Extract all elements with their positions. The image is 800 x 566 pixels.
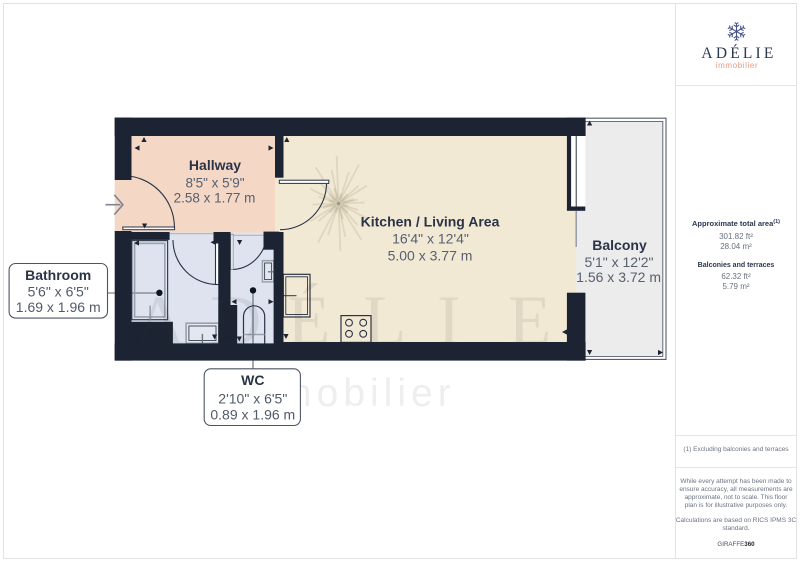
svg-text:I: I <box>437 282 461 360</box>
svg-text:8'5" x 5'9": 8'5" x 5'9" <box>185 175 244 190</box>
svg-text:2.58 x 1.77 m: 2.58 x 1.77 m <box>174 191 256 206</box>
svg-text:5'6" x 6'5": 5'6" x 6'5" <box>28 283 89 299</box>
svg-text:A: A <box>134 282 185 360</box>
svg-text:1.69 x 1.96 m: 1.69 x 1.96 m <box>16 299 101 315</box>
svg-text:1.56 x 3.72 m: 1.56 x 3.72 m <box>576 269 661 285</box>
svg-text:D: D <box>210 282 261 360</box>
svg-text:16'4" x 12'4": 16'4" x 12'4" <box>392 231 469 247</box>
svg-text:Bathroom: Bathroom <box>25 267 91 283</box>
svg-text:L: L <box>363 282 406 360</box>
svg-text:Hallway: Hallway <box>189 157 241 173</box>
svg-text:WC: WC <box>241 372 264 388</box>
svg-text:Balcony: Balcony <box>592 237 647 253</box>
svg-text:2'10" x 6'5": 2'10" x 6'5" <box>218 390 287 406</box>
svg-text:5.00 x 3.77 m: 5.00 x 3.77 m <box>388 247 473 263</box>
svg-text:E: E <box>508 282 551 360</box>
svg-text:0.89 x 1.96 m: 0.89 x 1.96 m <box>210 407 295 423</box>
svg-text:Kitchen / Living Area: Kitchen / Living Area <box>361 213 500 229</box>
svg-text:5'1" x 12'2": 5'1" x 12'2" <box>585 254 654 270</box>
svg-text:É: É <box>287 282 330 360</box>
